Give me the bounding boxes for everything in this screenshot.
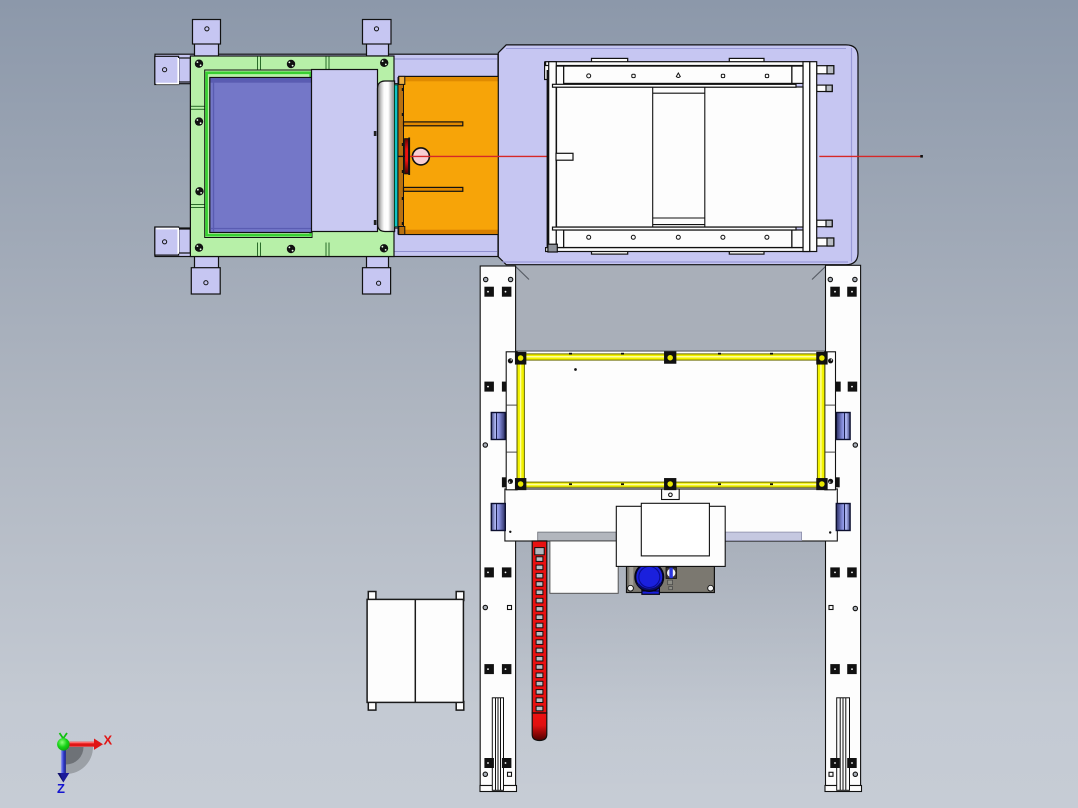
svg-text:X: X xyxy=(104,733,113,748)
svg-text:Z: Z xyxy=(57,781,65,796)
